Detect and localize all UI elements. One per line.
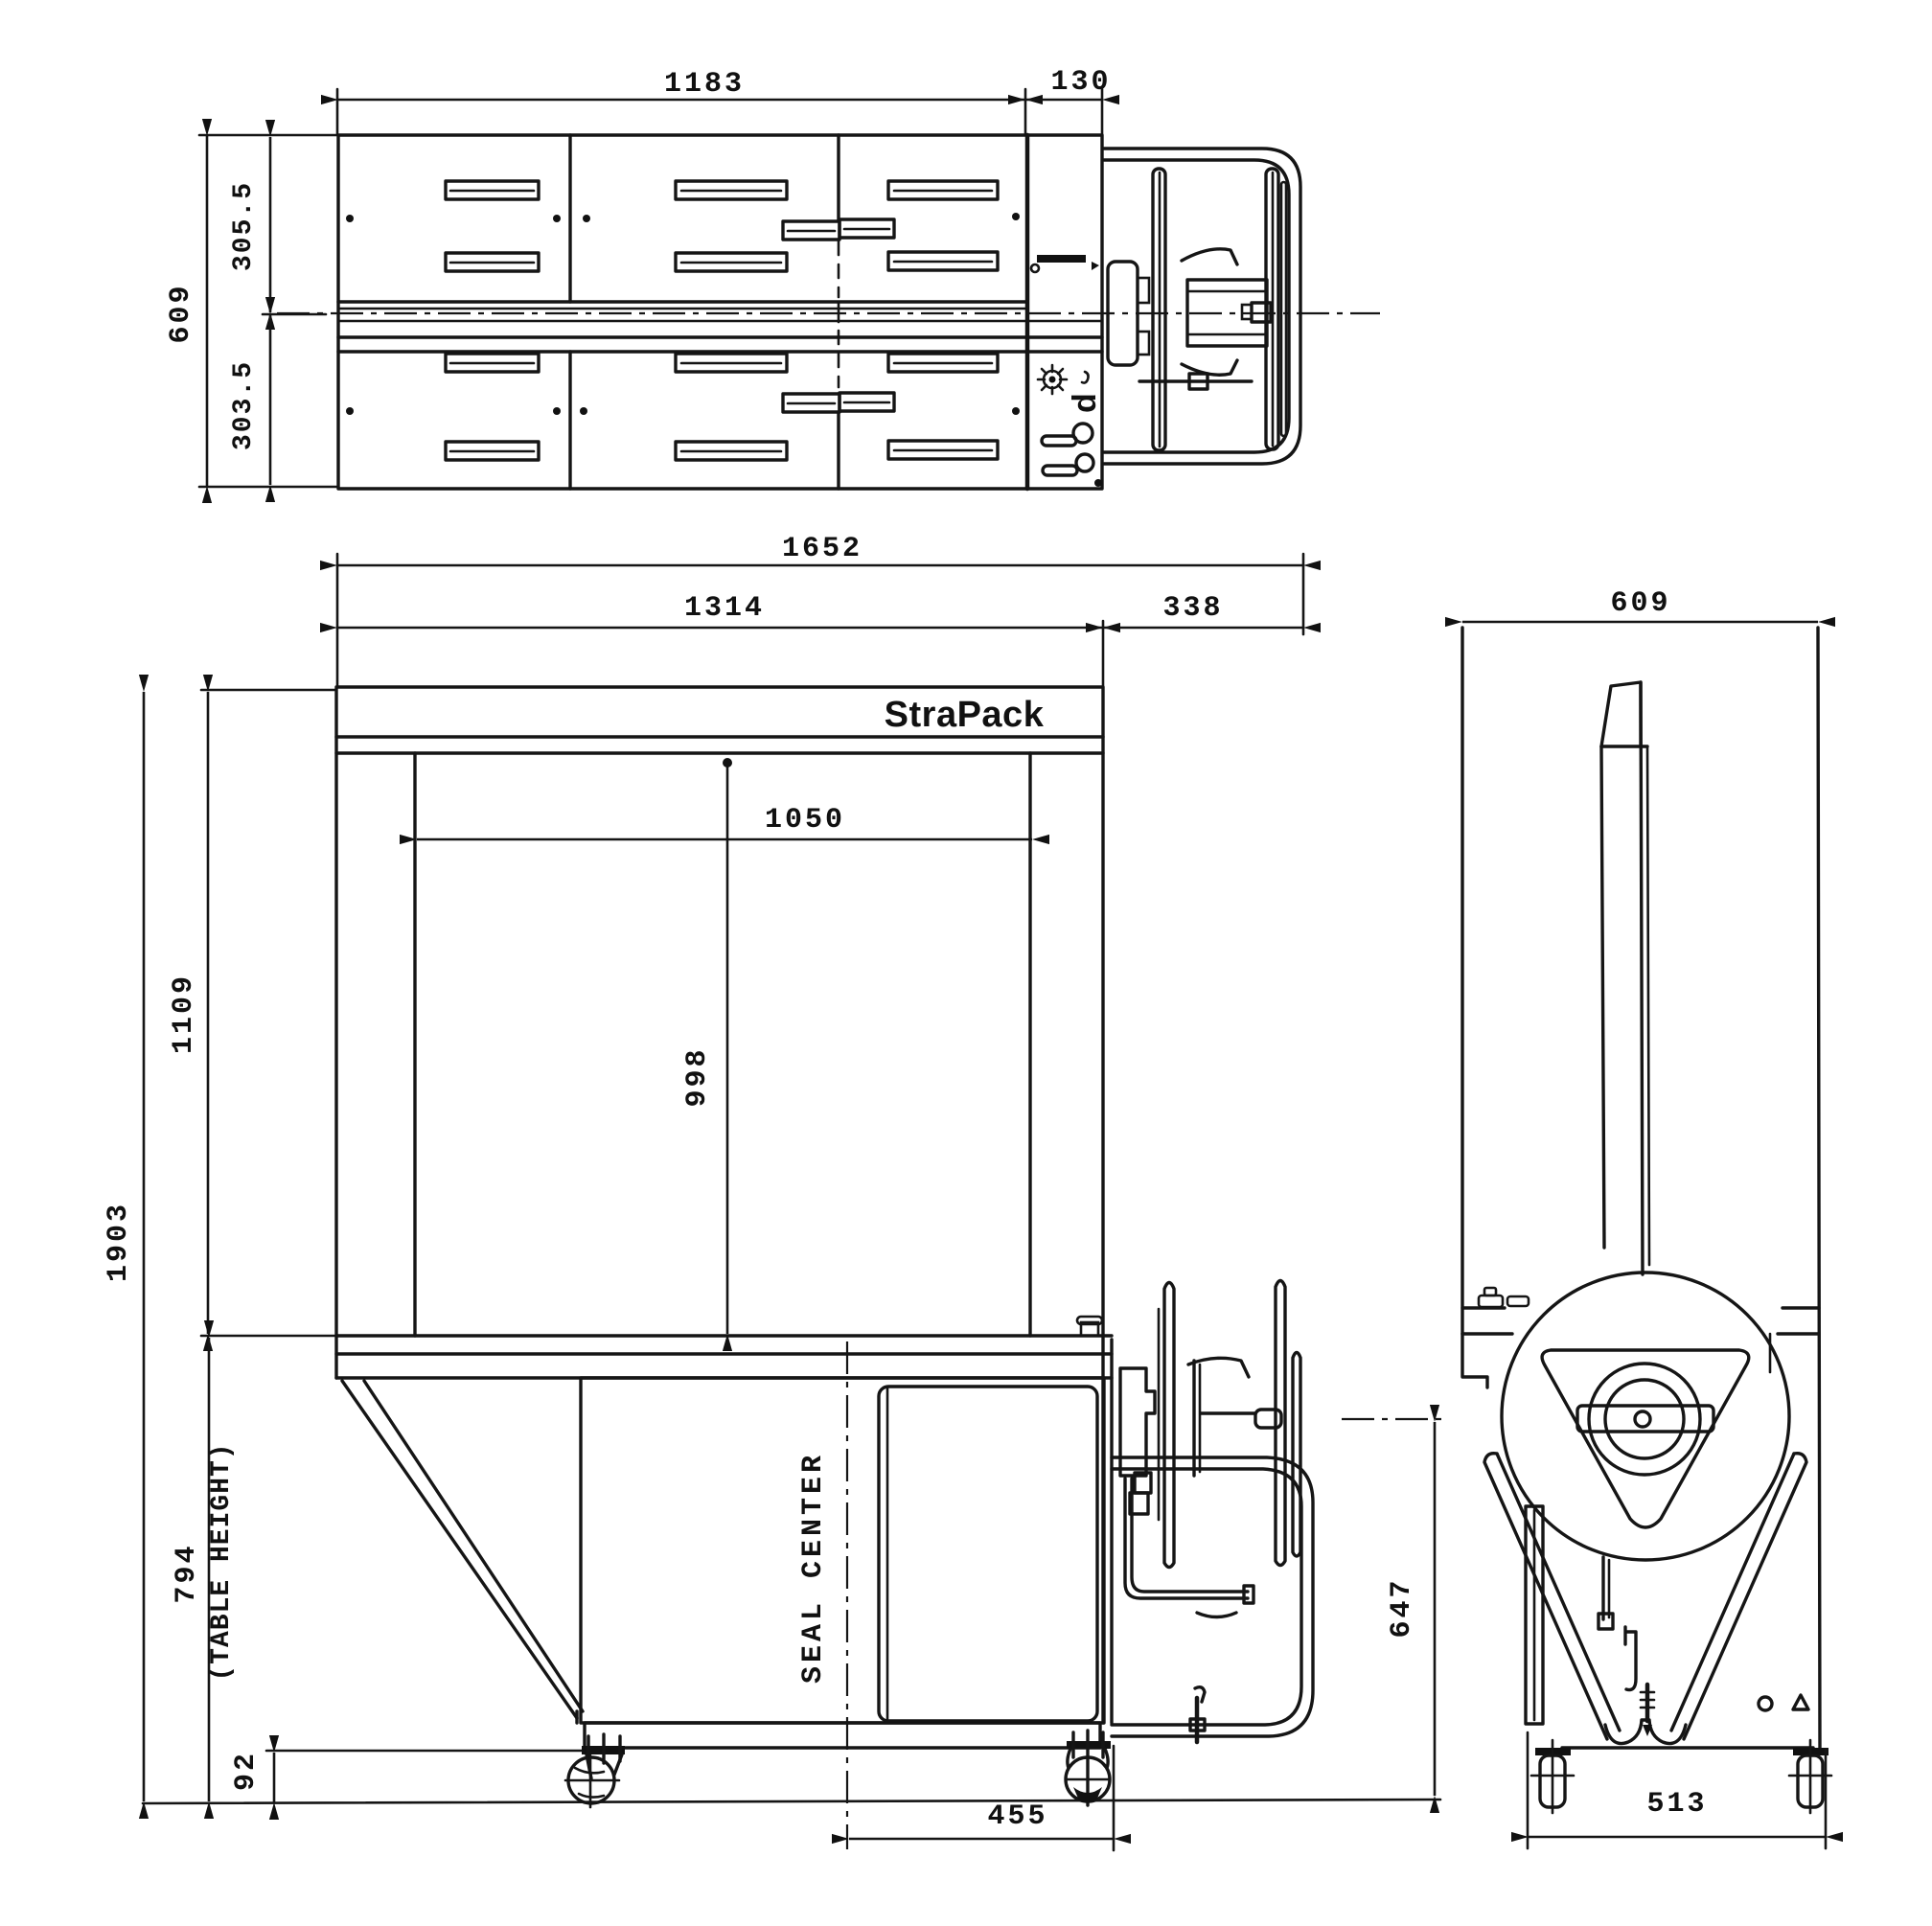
svg-text:SEAL CENTER: SEAL CENTER bbox=[797, 1452, 830, 1684]
svg-text:455: 455 bbox=[987, 1800, 1047, 1833]
svg-text:303.5: 303.5 bbox=[229, 360, 259, 450]
svg-text:998: 998 bbox=[681, 1046, 714, 1107]
svg-text:1183: 1183 bbox=[664, 68, 745, 101]
svg-text:338: 338 bbox=[1162, 592, 1223, 625]
svg-text:513: 513 bbox=[1646, 1788, 1707, 1821]
svg-text:d: d bbox=[1067, 393, 1103, 413]
svg-text:1903: 1903 bbox=[103, 1202, 135, 1282]
svg-text:1050: 1050 bbox=[765, 804, 845, 837]
svg-text:(TABLE HEIGHT): (TABLE HEIGHT) bbox=[207, 1442, 237, 1681]
svg-text:1314: 1314 bbox=[684, 592, 765, 625]
svg-text:92: 92 bbox=[230, 1751, 263, 1791]
svg-text:StraPack: StraPack bbox=[885, 695, 1045, 735]
svg-text:305.5: 305.5 bbox=[229, 181, 259, 271]
svg-text:1652: 1652 bbox=[782, 533, 862, 565]
svg-text:609: 609 bbox=[1610, 587, 1670, 620]
svg-text:794: 794 bbox=[171, 1543, 203, 1603]
svg-text:609: 609 bbox=[165, 283, 197, 343]
svg-text:647: 647 bbox=[1386, 1577, 1418, 1638]
svg-text:1109: 1109 bbox=[168, 974, 200, 1054]
